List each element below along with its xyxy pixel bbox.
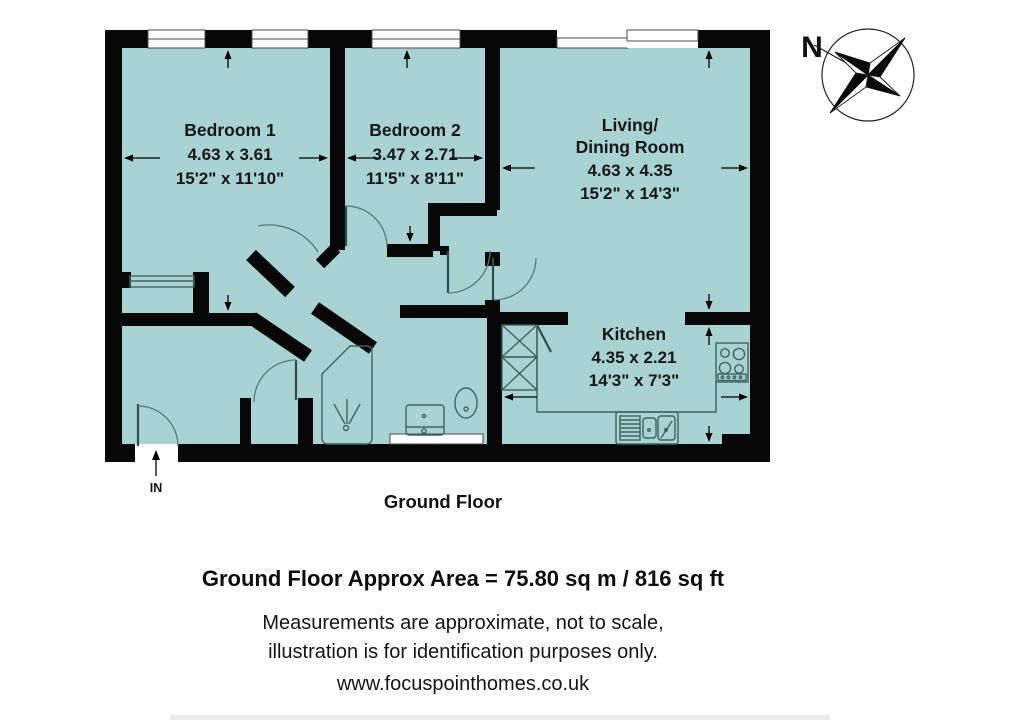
room-label-kitchen: Kitchen 4.35 x 2.21 14'3" x 7'3" xyxy=(589,324,679,390)
room-size-metric: 4.63 x 4.35 xyxy=(587,161,672,180)
room-label-bedroom1: Bedroom 1 4.63 x 3.61 15'2" x 11'10" xyxy=(176,120,284,188)
room-name: Bedroom 1 xyxy=(184,120,276,140)
compass-north-label: N xyxy=(801,31,823,64)
floorplan-canvas: IN Bedroom 1 4.63 x 3.61 15'2" x 11'10" … xyxy=(0,0,1024,723)
room-name: Kitchen xyxy=(602,324,666,344)
entrance-label: IN xyxy=(150,481,163,495)
room-size-imperial: 14'3" x 7'3" xyxy=(589,371,679,390)
room-name-line2: Dining Room xyxy=(576,137,685,157)
room-size-imperial: 15'2" x 11'10" xyxy=(176,169,284,188)
room-size-imperial: 15'2" x 14'3" xyxy=(580,184,680,203)
room-name-line1: Living/ xyxy=(602,115,659,135)
disclaimer-line2: illustration is for identification purpo… xyxy=(268,641,658,663)
compass-rose-icon xyxy=(814,29,914,121)
area-summary: Ground Floor Approx Area = 75.80 sq m / … xyxy=(202,566,725,591)
floorplan-page: IN Bedroom 1 4.63 x 3.61 15'2" x 11'10" … xyxy=(0,0,1024,723)
cropped-text-remnant xyxy=(170,715,830,720)
window-icon xyxy=(148,30,205,48)
floor-title: Ground Floor xyxy=(384,491,502,512)
room-label-bedroom2: Bedroom 2 3.47 x 2.71 11'5" x 8'11" xyxy=(366,120,464,188)
window-icon xyxy=(372,30,460,48)
room-name: Bedroom 2 xyxy=(369,120,461,140)
room-size-metric: 3.47 x 2.71 xyxy=(372,145,457,164)
window-icon xyxy=(627,30,698,48)
website-url: www.focuspointhomes.co.uk xyxy=(336,673,590,695)
window-icon xyxy=(252,30,308,48)
window-icon xyxy=(557,30,628,48)
room-size-metric: 4.35 x 2.21 xyxy=(591,348,676,367)
room-size-imperial: 11'5" x 8'11" xyxy=(366,169,464,188)
disclaimer-line1: Measurements are approximate, not to sca… xyxy=(262,612,663,634)
room-size-metric: 4.63 x 3.61 xyxy=(187,145,272,164)
